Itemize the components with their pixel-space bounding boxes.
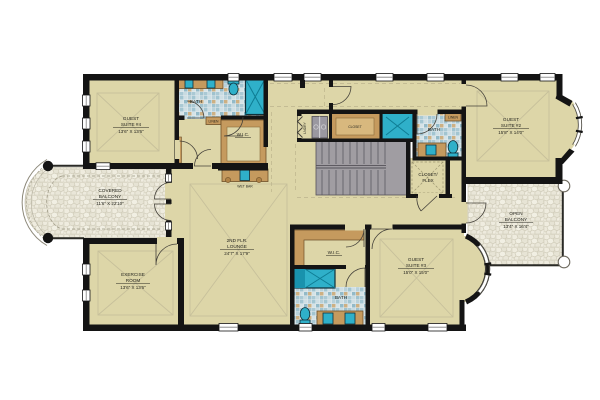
svg-text:13'4" X 16'4": 13'4" X 16'4" xyxy=(503,224,529,229)
svg-text:SUITE #2: SUITE #2 xyxy=(501,123,522,128)
svg-text:BATH: BATH xyxy=(335,295,347,300)
svg-text:GUEST: GUEST xyxy=(123,116,139,121)
svg-text:OPEN: OPEN xyxy=(509,211,522,216)
svg-text:13'6" X 13'6": 13'6" X 13'6" xyxy=(120,285,146,290)
svg-text:11'6" X 22'10": 11'6" X 22'10" xyxy=(96,201,124,206)
svg-text:COVERED: COVERED xyxy=(98,188,122,193)
svg-text:EXERCISE: EXERCISE xyxy=(121,272,145,277)
svg-text:LOUNGE: LOUNGE xyxy=(227,244,247,249)
svg-text:GUEST: GUEST xyxy=(408,257,424,262)
svg-text:15'0" X 15'0": 15'0" X 15'0" xyxy=(403,270,429,275)
svg-text:24'7" X 17'9": 24'7" X 17'9" xyxy=(224,251,250,256)
svg-text:LINEN: LINEN xyxy=(209,119,220,123)
svg-text:BATH: BATH xyxy=(428,127,440,132)
svg-text:FLEX: FLEX xyxy=(422,178,433,183)
svg-text:CLOSET/: CLOSET/ xyxy=(418,172,438,177)
svg-text:SUITE #3: SUITE #3 xyxy=(406,263,427,268)
svg-text:BATH: BATH xyxy=(190,99,202,104)
svg-text:GUEST: GUEST xyxy=(503,117,519,122)
svg-text:SUITE #4: SUITE #4 xyxy=(121,122,142,127)
svg-text:CLOSET: CLOSET xyxy=(348,125,362,129)
svg-text:LINEN: LINEN xyxy=(448,115,459,119)
svg-text:BALCONY: BALCONY xyxy=(505,217,528,222)
svg-text:2ND FLR.: 2ND FLR. xyxy=(227,238,248,243)
svg-text:13'6" X 13'6": 13'6" X 13'6" xyxy=(118,129,144,134)
svg-text:W.I.C.: W.I.C. xyxy=(237,132,250,137)
svg-text:15'8" X 14'0": 15'8" X 14'0" xyxy=(498,130,524,135)
svg-text:ROOM: ROOM xyxy=(126,278,141,283)
svg-text:W.I.C.: W.I.C. xyxy=(328,250,341,255)
svg-text:LNDRY: LNDRY xyxy=(303,122,307,134)
svg-text:BALCONY: BALCONY xyxy=(99,194,122,199)
svg-text:WET BAR: WET BAR xyxy=(237,185,253,189)
